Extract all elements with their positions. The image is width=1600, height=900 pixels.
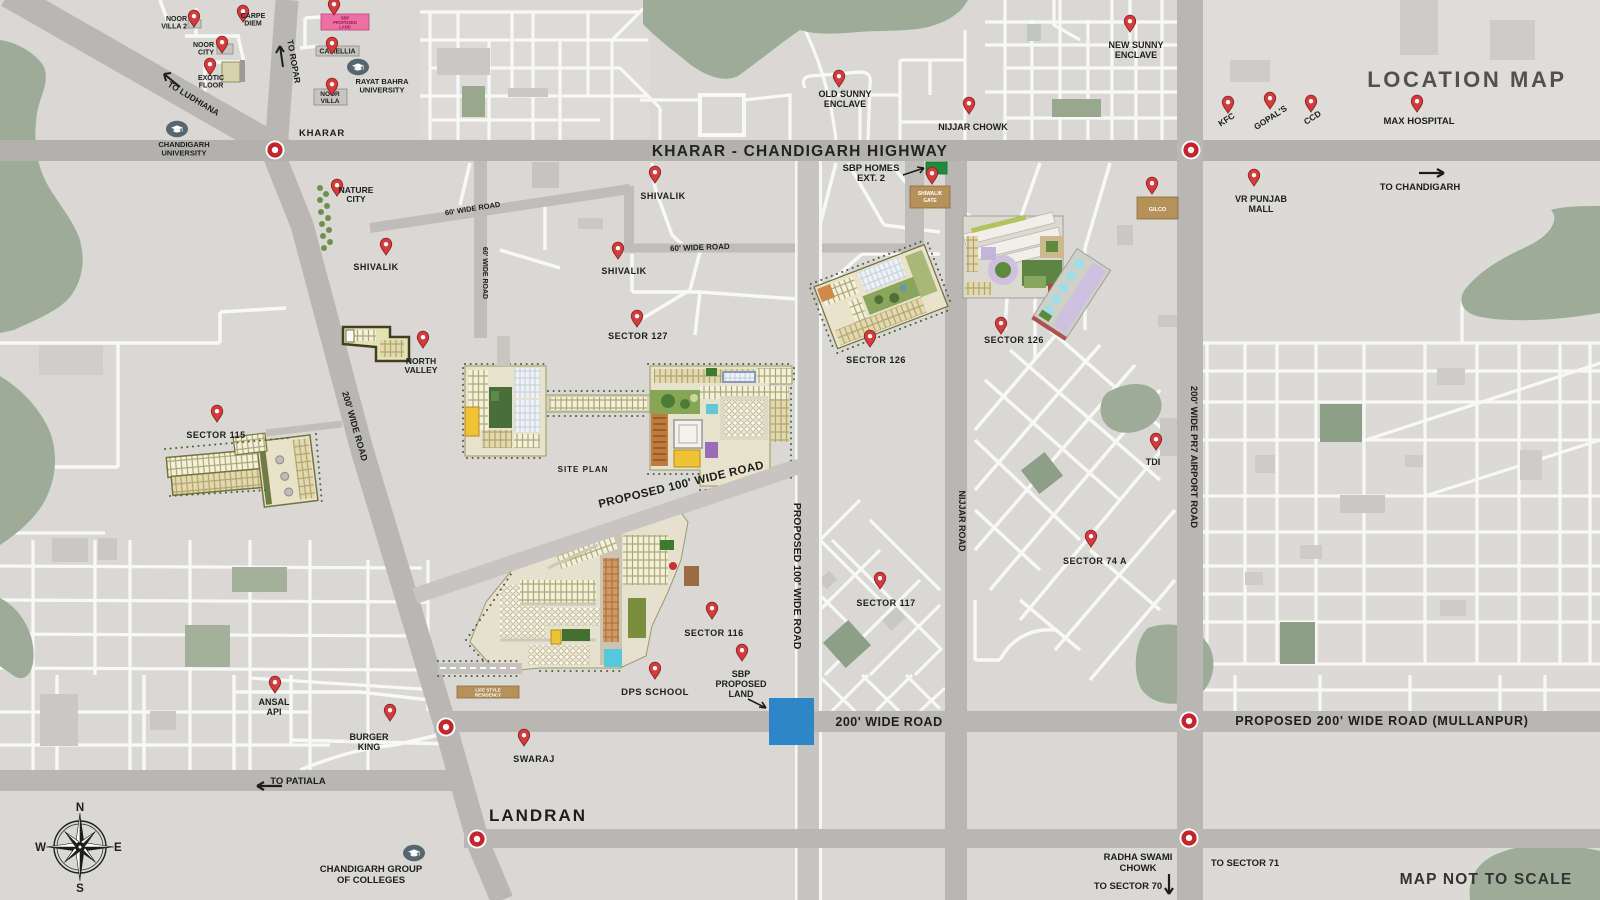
svg-text:LAND: LAND	[729, 689, 754, 699]
svg-text:TO SECTOR 71: TO SECTOR 71	[1211, 858, 1280, 869]
svg-text:RADHA SWAMI: RADHA SWAMI	[1104, 852, 1173, 863]
svg-text:NIJJAR ROAD: NIJJAR ROAD	[957, 490, 967, 552]
svg-text:UNIVERSITY: UNIVERSITY	[161, 149, 206, 158]
svg-text:BURGER: BURGER	[349, 732, 389, 742]
svg-text:SECTOR 74 A: SECTOR 74 A	[1063, 556, 1127, 566]
svg-text:ENCLAVE: ENCLAVE	[824, 99, 866, 109]
svg-text:MAP NOT TO SCALE: MAP NOT TO SCALE	[1400, 871, 1573, 888]
svg-text:SHIVALIK: SHIVALIK	[640, 191, 685, 201]
svg-text:GILCO: GILCO	[1149, 207, 1167, 213]
svg-text:CAMELLIA: CAMELLIA	[319, 49, 355, 56]
svg-text:NEW SUNNY: NEW SUNNY	[1108, 40, 1163, 50]
svg-text:200' WIDE ROAD: 200' WIDE ROAD	[835, 715, 942, 729]
svg-text:VILLA: VILLA	[321, 98, 340, 105]
svg-text:VILLA 2: VILLA 2	[161, 24, 187, 31]
svg-text:SHIVALIK: SHIVALIK	[353, 262, 398, 272]
svg-text:200' WIDE PR7 AIRPORT ROAD: 200' WIDE PR7 AIRPORT ROAD	[1188, 386, 1199, 528]
svg-text:CHOWK: CHOWK	[1120, 863, 1157, 874]
svg-text:KHARAR: KHARAR	[299, 128, 345, 139]
svg-text:GATE: GATE	[923, 198, 937, 204]
svg-text:NIJJAR CHOWK: NIJJAR CHOWK	[938, 122, 1008, 132]
svg-text:CITY: CITY	[346, 194, 366, 204]
svg-text:LANDRAN: LANDRAN	[489, 806, 587, 825]
svg-text:LOCATION MAP: LOCATION MAP	[1367, 67, 1566, 92]
svg-text:LAND: LAND	[339, 25, 351, 30]
svg-text:TDI: TDI	[1146, 457, 1161, 467]
svg-text:OLD SUNNY: OLD SUNNY	[818, 89, 871, 99]
svg-text:ANSAL: ANSAL	[259, 697, 291, 707]
svg-text:PROPOSED: PROPOSED	[715, 679, 767, 689]
svg-text:EXOTIC: EXOTIC	[198, 75, 224, 82]
svg-text:SECTOR 116: SECTOR 116	[684, 628, 743, 638]
svg-text:FLOOR: FLOOR	[199, 83, 224, 90]
svg-text:S: S	[76, 883, 84, 895]
svg-text:PROPOSED 100' WIDE ROAD: PROPOSED 100' WIDE ROAD	[791, 503, 803, 650]
svg-text:SHIVALIK: SHIVALIK	[601, 266, 646, 276]
svg-text:KHARAR - CHANDIGARH HIGHWAY: KHARAR - CHANDIGARH HIGHWAY	[652, 143, 948, 160]
svg-text:60' WIDE ROAD: 60' WIDE ROAD	[481, 247, 488, 299]
svg-text:RESIDENCY: RESIDENCY	[475, 693, 501, 698]
svg-text:SECTOR 126: SECTOR 126	[846, 355, 906, 365]
svg-text:SWARAJ: SWARAJ	[513, 754, 555, 764]
svg-text:TO SECTOR 70: TO SECTOR 70	[1094, 881, 1162, 892]
svg-text:SECTOR 127: SECTOR 127	[608, 331, 668, 341]
svg-text:SBP: SBP	[732, 669, 751, 679]
svg-text:OF COLLEGES: OF COLLEGES	[337, 875, 405, 886]
svg-text:SHIWALIK: SHIWALIK	[918, 191, 943, 197]
svg-text:N: N	[76, 802, 84, 814]
svg-text:W: W	[35, 842, 46, 854]
svg-text:SITE PLAN: SITE PLAN	[558, 465, 609, 474]
svg-text:E: E	[114, 842, 122, 854]
svg-text:DPS SCHOOL: DPS SCHOOL	[621, 687, 689, 698]
svg-text:MALL: MALL	[1249, 204, 1274, 214]
svg-text:NOOR: NOOR	[193, 42, 214, 49]
svg-text:CHANDIGARH GROUP: CHANDIGARH GROUP	[320, 864, 423, 875]
svg-text:MAX HOSPITAL: MAX HOSPITAL	[1383, 116, 1454, 127]
svg-text:TO CHANDIGARH: TO CHANDIGARH	[1380, 182, 1461, 193]
svg-text:VR PUNJAB: VR PUNJAB	[1235, 194, 1288, 204]
svg-text:SECTOR 115: SECTOR 115	[186, 430, 245, 440]
svg-text:PROPOSED 200' WIDE ROAD (MULLA: PROPOSED 200' WIDE ROAD (MULLANPUR)	[1235, 714, 1529, 728]
svg-text:VALLEY: VALLEY	[405, 365, 438, 375]
svg-text:EXT. 2: EXT. 2	[857, 173, 885, 184]
svg-text:CARPE: CARPE	[241, 13, 266, 20]
svg-text:KING: KING	[358, 742, 381, 752]
svg-text:CITY: CITY	[198, 50, 214, 57]
svg-text:NOOR: NOOR	[166, 16, 187, 23]
svg-text:API: API	[266, 707, 281, 717]
svg-text:ENCLAVE: ENCLAVE	[1115, 50, 1157, 60]
svg-text:DIEM: DIEM	[244, 21, 262, 28]
svg-text:UNIVERSITY: UNIVERSITY	[359, 86, 404, 95]
svg-text:SECTOR 126: SECTOR 126	[984, 335, 1044, 345]
svg-text:SECTOR 117: SECTOR 117	[856, 598, 915, 608]
